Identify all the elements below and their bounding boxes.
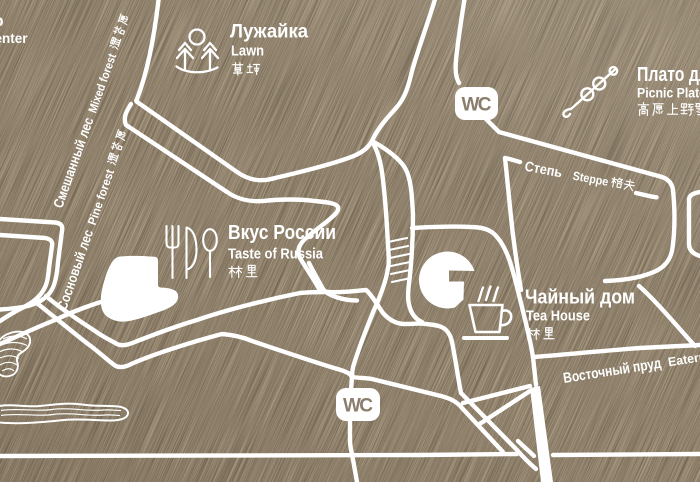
svg-text:Вкус России: Вкус России	[228, 221, 336, 244]
svg-text:Taste of Russia: Taste of Russia	[228, 246, 324, 263]
svg-text:WC: WC	[343, 396, 373, 417]
svg-text:Лужайка: Лужайка	[230, 21, 308, 43]
svg-text:Чайный дом: Чайный дом	[525, 286, 635, 309]
svg-text:Visitor Center: Visitor Center	[0, 31, 28, 46]
svg-text:Плато дл: Плато дл	[637, 64, 700, 86]
svg-text:WC: WC	[462, 95, 492, 116]
svg-text:Tea House: Tea House	[526, 308, 590, 325]
svg-text:Picnic Plate: Picnic Plate	[637, 86, 700, 101]
svg-text:Lawn: Lawn	[231, 43, 264, 60]
svg-text:центр: центр	[0, 13, 4, 30]
